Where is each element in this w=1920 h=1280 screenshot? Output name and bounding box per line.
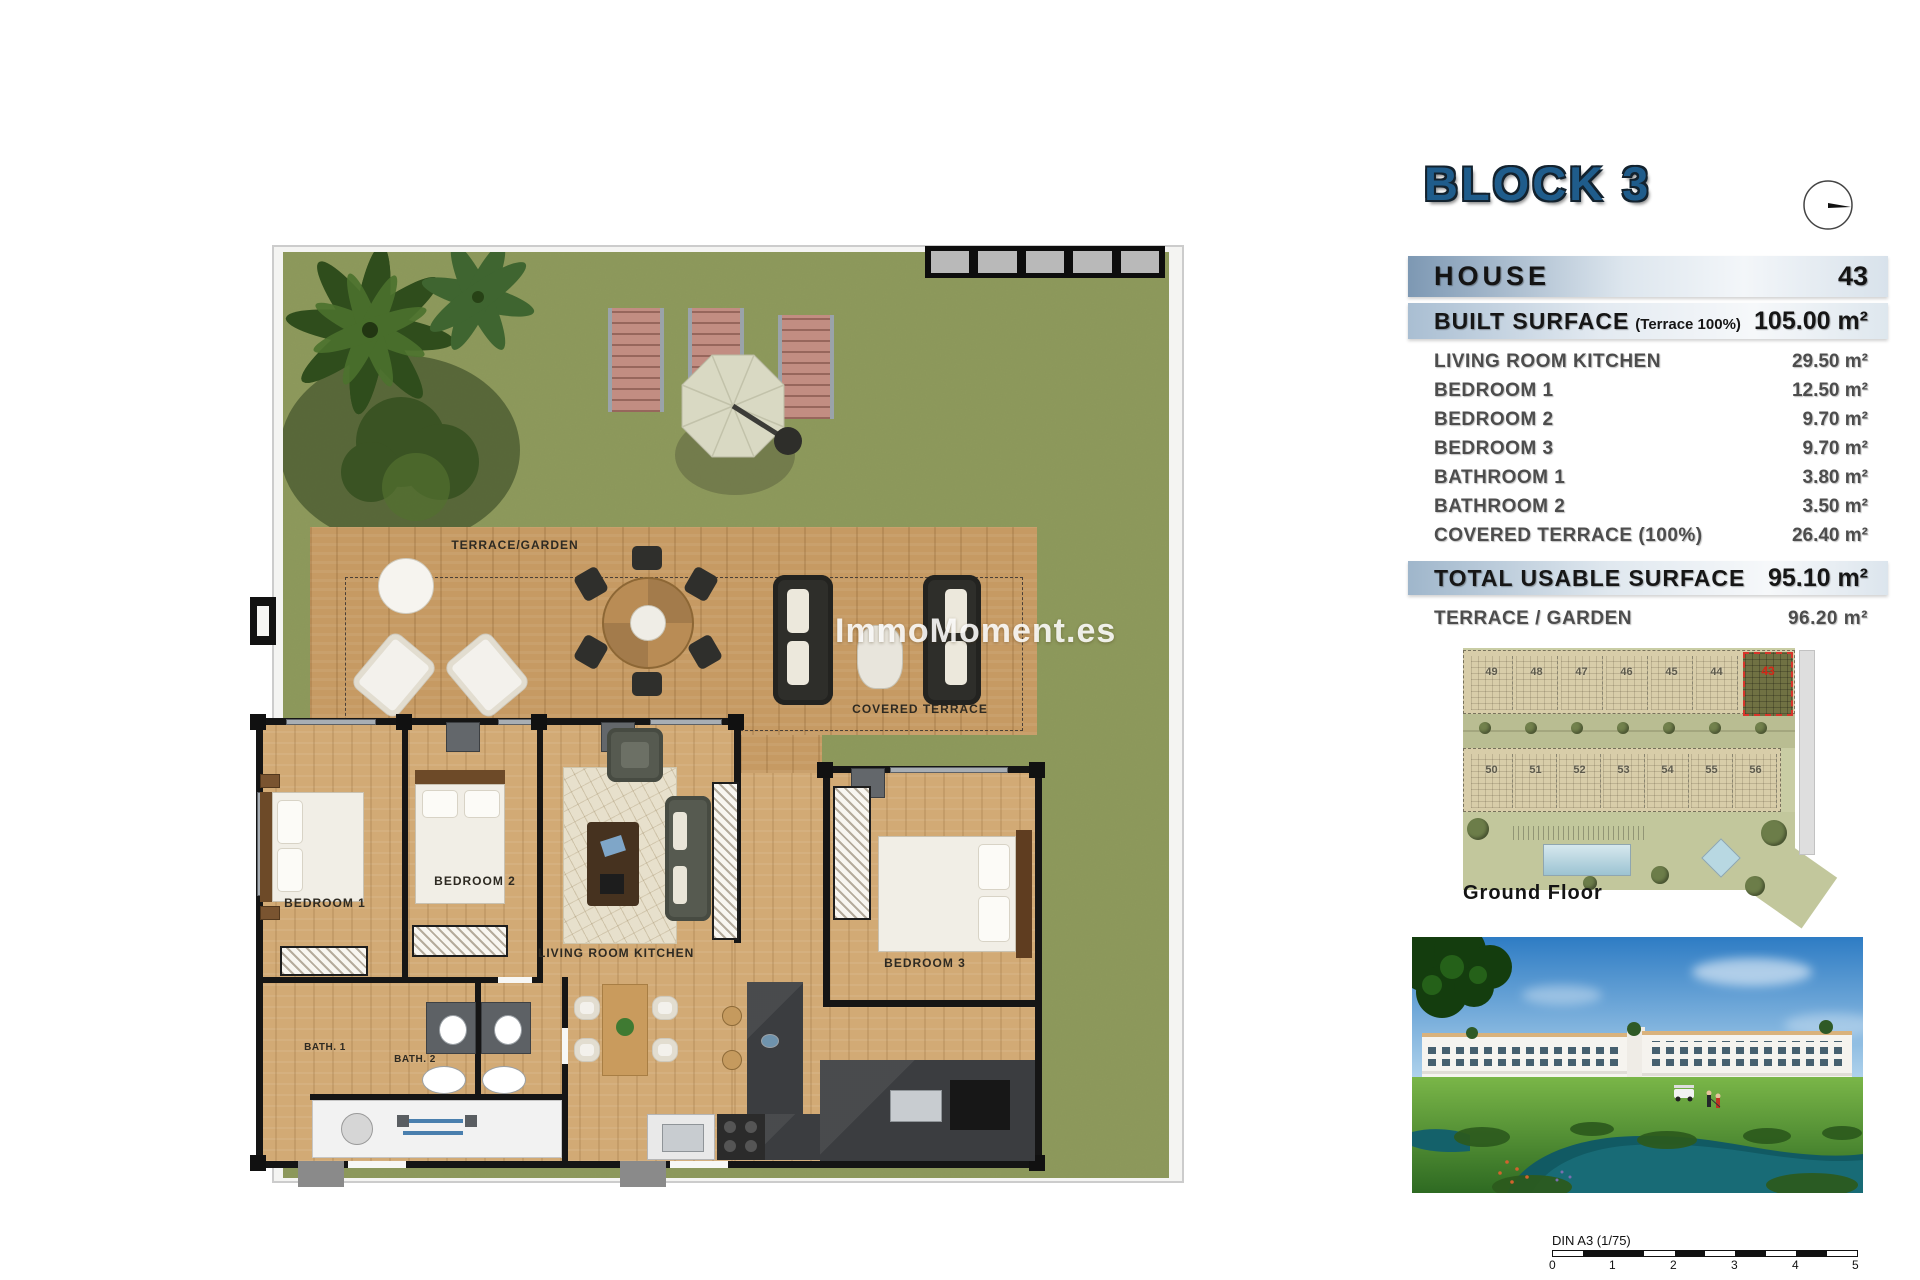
- door-opening: [670, 1161, 728, 1168]
- total-surface-bar: TOTAL USABLE SURFACE 95.10 m²: [1408, 561, 1888, 595]
- tree-icon: [1525, 722, 1537, 734]
- tree-icon: [1745, 876, 1765, 896]
- dining-chair: [652, 1038, 678, 1062]
- bath2-toilet: [482, 1066, 526, 1094]
- garden-fence: [925, 246, 1165, 278]
- bedroom2-label: BEDROOM 2: [420, 874, 530, 888]
- outdoor-sofa: [773, 575, 833, 705]
- terrace-deck-extension: [740, 735, 822, 773]
- door-opening: [348, 1161, 406, 1168]
- tick: 3: [1731, 1258, 1738, 1272]
- room-label: BATHROOM 2: [1434, 496, 1565, 518]
- tree-icon: [1571, 722, 1583, 734]
- site-unit: 45: [1651, 656, 1693, 710]
- room-row: BATHROOM 1 3.80 m²: [1408, 463, 1888, 492]
- room-value: 3.50 m²: [1803, 496, 1868, 518]
- bath1-sink: [426, 1002, 476, 1054]
- wall: [562, 977, 568, 1168]
- room-label: BEDROOM 3: [1434, 438, 1554, 460]
- tick: 1: [1609, 1258, 1616, 1272]
- room-label: BATHROOM 1: [1434, 467, 1565, 489]
- parasol-icon: [630, 345, 810, 515]
- room-value: 29.50 m²: [1792, 351, 1868, 373]
- armchair: [607, 728, 663, 782]
- column: [250, 1155, 266, 1171]
- room-value: 9.70 m²: [1803, 409, 1868, 431]
- bar-stool: [722, 1050, 742, 1070]
- terrace-garden-value: 96.20 m²: [1788, 608, 1868, 630]
- site-unit-highlight: 43: [1743, 652, 1793, 716]
- entry-door: [250, 597, 276, 645]
- tree-icon: [1467, 818, 1489, 840]
- siteplan-road: [1799, 650, 1815, 855]
- scale-bar-label: DIN A3 (1/75): [1552, 1233, 1858, 1248]
- column: [250, 714, 266, 730]
- bedroom2-headboard: [415, 770, 505, 784]
- room-label: BEDROOM 2: [1434, 409, 1554, 431]
- bedroom2-wardrobe: [412, 925, 508, 957]
- table-center: [630, 605, 666, 641]
- coffee-table: [587, 822, 639, 906]
- site-unit: 51: [1515, 754, 1557, 808]
- scale-bar-segments: [1552, 1250, 1858, 1257]
- pool: [1543, 844, 1631, 876]
- house-number: 43: [1838, 261, 1868, 292]
- wall: [823, 1000, 1042, 1007]
- built-surface-value: 105.00 m²: [1754, 307, 1868, 336]
- site-unit: 50: [1471, 754, 1513, 808]
- floor-plan: TERRACE/GARDEN COVERED TERRACE ImmoMomen…: [250, 240, 1190, 1190]
- column: [531, 714, 547, 730]
- pool-deck: [1513, 826, 1645, 840]
- site-unit: 53: [1603, 754, 1645, 808]
- bedroom1-wardrobe: [280, 946, 368, 976]
- dining-chair: [574, 1038, 600, 1062]
- built-surface-bar: BUILT SURFACE (Terrace 100%) 105.00 m²: [1408, 303, 1888, 339]
- tree-icon: [1709, 722, 1721, 734]
- terrace-garden-label: TERRACE / GARDEN: [1434, 608, 1632, 630]
- kitchen-counter-segment: [765, 1114, 820, 1160]
- bath2-sink: [481, 1002, 531, 1054]
- room-value: 26.40 m²: [1792, 525, 1868, 547]
- tree-icon: [1617, 722, 1629, 734]
- pillow: [422, 790, 458, 818]
- kitchen-sink-cabinet: [647, 1114, 715, 1160]
- bedroom3-wardrobe: [833, 786, 871, 920]
- siteplan-path: [1463, 730, 1795, 732]
- room-value: 12.50 m²: [1792, 380, 1868, 402]
- door-step: [298, 1161, 344, 1187]
- window: [650, 719, 722, 725]
- room-row: COVERED TERRACE (100%) 26.40 m²: [1408, 521, 1888, 550]
- room-row: LIVING ROOM KITCHEN 29.50 m²: [1408, 347, 1888, 376]
- scale-bar-ticks: 0 1 2 3 4 5: [1552, 1257, 1858, 1273]
- site-unit: 54: [1647, 754, 1689, 808]
- site-unit: 44: [1696, 656, 1738, 710]
- site-plan: 49 48 47 46 45 44 43 50 51 52 53 54 55 5…: [1455, 648, 1823, 924]
- site-unit: 46: [1606, 656, 1648, 710]
- door-opening: [498, 977, 532, 983]
- kitchen-island: [747, 982, 803, 1116]
- pillow: [464, 790, 500, 818]
- window: [286, 719, 376, 725]
- tree-icon: [1651, 866, 1669, 884]
- site-unit: 49: [1471, 656, 1513, 710]
- dining-chair: [652, 996, 678, 1020]
- dining-chair: [574, 996, 600, 1020]
- room-label: LIVING ROOM KITCHEN: [1434, 351, 1661, 373]
- compass-icon: [1800, 178, 1856, 234]
- kitchen-counter: [820, 1060, 1035, 1161]
- wall: [402, 718, 408, 983]
- outdoor-chair: [632, 672, 662, 696]
- column: [396, 714, 412, 730]
- site-unit: 47: [1561, 656, 1603, 710]
- side-table: [378, 558, 434, 614]
- column: [1029, 762, 1045, 778]
- wall: [537, 718, 543, 983]
- room-list: LIVING ROOM KITCHEN 29.50 m² BEDROOM 1 1…: [1408, 347, 1888, 550]
- room-row: BATHROOM 2 3.50 m²: [1408, 492, 1888, 521]
- pillow: [277, 848, 303, 892]
- sliding-door-frame: [446, 722, 480, 752]
- watermark: ImmoMoment.es: [835, 612, 1116, 651]
- outdoor-chair: [632, 546, 662, 570]
- pillow: [978, 844, 1010, 890]
- site-unit: 55: [1691, 754, 1733, 808]
- tree-icon: [1761, 820, 1787, 846]
- room-row: BEDROOM 3 9.70 m²: [1408, 434, 1888, 463]
- plant-icon: [616, 1018, 634, 1036]
- bath1-label: BATH. 1: [290, 1042, 360, 1053]
- room-value: 3.80 m²: [1803, 467, 1868, 489]
- site-unit: 52: [1559, 754, 1601, 808]
- scale-bar: DIN A3 (1/75) 0 1 2 3 4 5: [1552, 1233, 1858, 1273]
- total-surface-label: TOTAL USABLE SURFACE: [1434, 565, 1745, 592]
- room-row: BEDROOM 2 9.70 m²: [1408, 405, 1888, 434]
- door-step: [620, 1161, 666, 1187]
- total-surface-value: 95.10 m²: [1768, 564, 1868, 593]
- bedroom3-headboard: [1016, 830, 1032, 958]
- tick: 5: [1852, 1258, 1859, 1272]
- column: [817, 762, 833, 778]
- terrace-garden-row: TERRACE / GARDEN 96.20 m²: [1408, 604, 1888, 634]
- living-shelf: [712, 782, 739, 940]
- wall: [823, 766, 830, 1007]
- window: [498, 719, 534, 725]
- door-opening: [562, 1028, 568, 1064]
- wall: [1035, 766, 1042, 1168]
- built-surface-note: (Terrace 100%): [1635, 316, 1741, 333]
- house-bar: HOUSE 43: [1408, 256, 1888, 297]
- bath1-toilet: [422, 1066, 466, 1094]
- tree-icon: [1663, 722, 1675, 734]
- window: [890, 767, 1008, 773]
- pillow: [978, 896, 1010, 942]
- room-value: 9.70 m²: [1803, 438, 1868, 460]
- tick: 0: [1549, 1258, 1556, 1272]
- tree-icon: [1479, 722, 1491, 734]
- site-unit: 56: [1735, 754, 1777, 808]
- pillow: [277, 800, 303, 844]
- built-surface-label: BUILT SURFACE: [1434, 308, 1629, 335]
- nightstand: [260, 774, 280, 788]
- living-label: LIVING ROOM KITCHEN: [538, 946, 683, 960]
- brochure-page: TERRACE/GARDEN COVERED TERRACE ImmoMomen…: [0, 0, 1920, 1280]
- bedroom1-label: BEDROOM 1: [270, 896, 380, 910]
- bar-stool: [722, 1006, 742, 1026]
- bedroom3-label: BEDROOM 3: [855, 956, 995, 970]
- laundry-room: [312, 1100, 562, 1158]
- sofa: [665, 796, 711, 921]
- block-title: BLOCK 3: [1424, 156, 1651, 211]
- site-unit: 48: [1516, 656, 1558, 710]
- room-label: COVERED TERRACE (100%): [1434, 525, 1703, 547]
- column: [728, 714, 744, 730]
- tick: 2: [1670, 1258, 1677, 1272]
- room-row: BEDROOM 1 12.50 m²: [1408, 376, 1888, 405]
- room-label: BEDROOM 1: [1434, 380, 1554, 402]
- siteplan-caption: Ground Floor: [1463, 882, 1603, 905]
- bath2-label: BATH. 2: [380, 1054, 450, 1065]
- bedroom1-headboard: [260, 792, 272, 902]
- tree-icon: [1755, 722, 1767, 734]
- tick: 4: [1792, 1258, 1799, 1272]
- stove: [717, 1114, 765, 1160]
- house-label: HOUSE: [1434, 261, 1550, 292]
- terrace-garden-label: TERRACE/GARDEN: [440, 538, 590, 552]
- project-photo: [1412, 937, 1863, 1193]
